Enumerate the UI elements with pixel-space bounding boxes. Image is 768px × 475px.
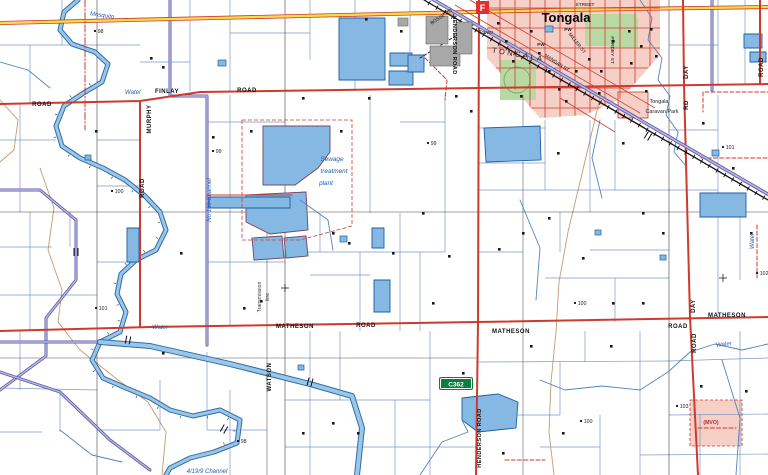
building — [400, 30, 403, 33]
spot-height-label: 100 — [578, 301, 587, 307]
map-label: Caravan Park — [646, 109, 679, 115]
spot-height-label: 101 — [99, 306, 108, 312]
spot-height-label: 98 — [241, 439, 247, 445]
building — [302, 432, 305, 435]
map-label: Tongala — [542, 10, 592, 25]
building — [655, 55, 658, 58]
building — [530, 345, 533, 348]
building — [243, 307, 246, 310]
factory-building — [398, 18, 408, 26]
farm-dam — [218, 60, 226, 66]
building — [565, 100, 568, 103]
building — [662, 232, 665, 235]
building — [640, 45, 643, 48]
building — [522, 232, 525, 235]
map-label: HENDERSON ROAD — [451, 15, 457, 74]
building — [455, 95, 458, 98]
building — [502, 452, 505, 455]
building — [598, 92, 601, 95]
map-label: ROAD — [692, 333, 698, 353]
building — [302, 97, 305, 100]
building — [212, 136, 215, 139]
map-label: PURDEY ST — [609, 36, 615, 63]
map-label: DAY — [691, 299, 697, 313]
map-label: line — [265, 293, 271, 301]
farm-dam — [545, 26, 553, 32]
building — [348, 242, 351, 245]
building — [498, 248, 501, 251]
map-label: Water — [750, 232, 756, 249]
map-label: ROAD — [356, 323, 376, 329]
map-label: MATHESON — [276, 324, 314, 330]
farm-dam — [660, 255, 666, 260]
building — [505, 40, 508, 43]
building — [557, 152, 560, 155]
map-label: WATSON — [267, 363, 273, 392]
map-label: Water — [125, 90, 142, 96]
spot-height-label: 99 — [431, 141, 437, 147]
map-label: STREET — [576, 2, 595, 8]
building — [512, 60, 515, 63]
topo-map-svg: FC362ROADWaterFINLAYROADWaterMATHESONROA… — [0, 0, 768, 475]
building — [368, 97, 371, 100]
recreation-oval — [504, 67, 530, 93]
building — [432, 302, 435, 305]
spot-height-label: 100 — [584, 419, 593, 425]
building — [612, 302, 615, 305]
map-label: RD — [684, 100, 690, 110]
map-label: ROAD — [237, 88, 257, 94]
map-label: Tower — [479, 30, 494, 36]
building — [392, 252, 395, 255]
spot-height-label: 102 — [760, 271, 768, 277]
building — [745, 390, 748, 393]
building — [588, 58, 591, 61]
building — [582, 257, 585, 260]
building — [630, 62, 633, 65]
building — [357, 432, 360, 435]
map-label: Sewage — [320, 156, 344, 163]
building — [558, 88, 561, 91]
building — [250, 130, 253, 133]
farm-dam — [712, 150, 719, 156]
building — [700, 385, 703, 388]
building — [365, 18, 368, 21]
factory-building — [456, 22, 472, 54]
building — [180, 252, 183, 255]
map-label: MATHESON — [492, 329, 530, 335]
map-label: ROAD — [668, 324, 688, 330]
spot-height-label: 101 — [726, 145, 735, 151]
building — [470, 110, 473, 113]
building — [332, 422, 335, 425]
building — [645, 90, 648, 93]
building — [530, 30, 533, 33]
map-label: Tongala — [650, 99, 669, 105]
water-body — [284, 236, 308, 258]
map-label: treatment — [321, 168, 348, 175]
spot-height-label: 98 — [98, 29, 104, 35]
map-label: DAY — [684, 65, 690, 79]
map-label: ROAD — [32, 102, 52, 108]
map-label: PW — [564, 27, 572, 32]
map-label: PW — [537, 42, 545, 47]
building — [702, 122, 705, 125]
map-viewport[interactable]: FC362ROADWaterFINLAYROADWaterMATHESONROA… — [0, 0, 768, 475]
building — [520, 95, 523, 98]
building — [340, 130, 343, 133]
building — [622, 142, 625, 145]
map-label: FINLAY — [155, 89, 179, 95]
building — [422, 212, 425, 215]
route-shield-label: C362 — [448, 382, 464, 389]
building — [462, 372, 465, 375]
spot-height-label: 99 — [216, 149, 222, 155]
map-label: ROAD — [140, 178, 146, 198]
map-label: HENDERSON ROAD — [477, 408, 483, 467]
map-label: Water — [152, 325, 169, 331]
building — [650, 28, 653, 31]
building — [732, 167, 735, 170]
building — [548, 217, 551, 220]
water-body — [374, 280, 390, 312]
building — [642, 212, 645, 215]
building — [600, 70, 603, 73]
building — [162, 352, 165, 355]
map-label: ROAD — [759, 57, 765, 77]
map-label: 4/19/9 Channel — [187, 469, 228, 475]
water-body — [127, 228, 139, 262]
building — [162, 66, 165, 69]
building — [575, 70, 578, 73]
spot-height-label: 100 — [115, 189, 124, 195]
building — [332, 232, 335, 235]
farm-dam — [85, 155, 91, 160]
map-label: No 169 Channel — [207, 178, 213, 222]
farm-dam — [340, 236, 347, 242]
water-body — [408, 55, 424, 72]
water-body — [389, 71, 413, 85]
water-body — [484, 126, 541, 162]
water-body — [372, 228, 384, 248]
map-label: MATHESON — [708, 313, 746, 319]
building — [150, 57, 153, 60]
building — [448, 255, 451, 258]
map-label: plant — [318, 180, 333, 187]
building — [628, 30, 631, 33]
water-body — [209, 197, 290, 208]
farm-dam — [298, 365, 304, 370]
map-label: (MVO) — [703, 420, 719, 426]
water-body — [339, 18, 385, 80]
map-label: Transmission — [257, 282, 263, 313]
building — [95, 130, 98, 133]
spot-height-label: 103 — [680, 404, 689, 410]
building — [610, 345, 613, 348]
farm-dam — [595, 230, 601, 235]
map-label: MURPHY — [147, 104, 153, 133]
water-body — [700, 193, 746, 217]
facility-marker-label: F — [480, 3, 486, 13]
building — [548, 70, 551, 73]
building — [642, 302, 645, 305]
water-body — [462, 394, 518, 432]
building — [497, 22, 500, 25]
building — [562, 432, 565, 435]
